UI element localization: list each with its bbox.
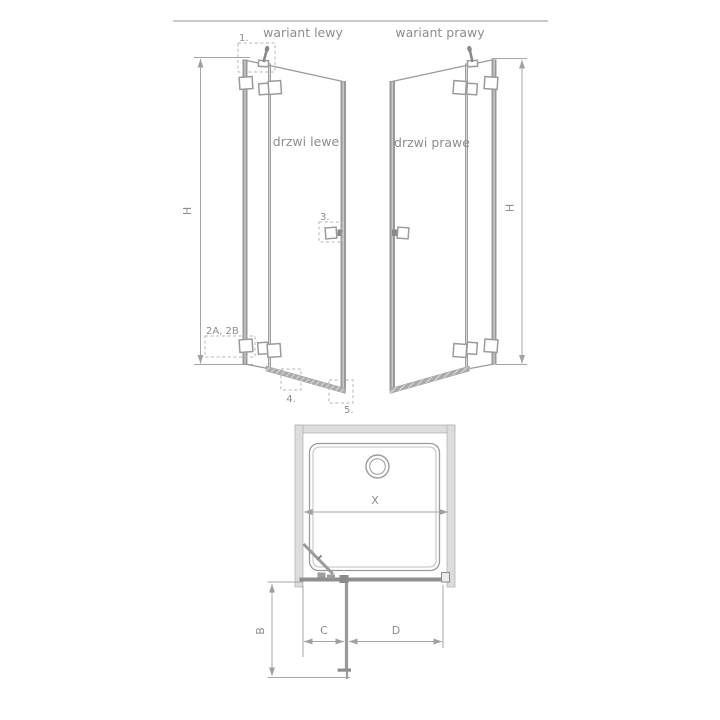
left-variant-title: wariant lewy bbox=[263, 25, 343, 40]
wall-anchor-block bbox=[442, 573, 450, 583]
callout-label-2ab: 2A, 2B bbox=[206, 326, 239, 337]
door-width-dim-label: D bbox=[392, 624, 400, 637]
right-door-text: drzwi prawe bbox=[394, 135, 470, 150]
height-dim-label-right: H bbox=[504, 204, 517, 212]
top-knob bbox=[467, 45, 478, 66]
diagram-page: wariant lewy wariant prawy H bbox=[0, 0, 720, 720]
callout-label-5: 5. bbox=[344, 405, 354, 416]
left-door-elevation: H bbox=[181, 33, 354, 416]
shower-tray bbox=[310, 444, 440, 571]
back-wall bbox=[295, 425, 455, 433]
callout-label-1: 1. bbox=[239, 33, 249, 44]
door-open-90 bbox=[338, 583, 352, 679]
right-wall bbox=[447, 425, 455, 587]
width-dim-label: X bbox=[371, 494, 379, 507]
left-segment-dim-label: C bbox=[320, 624, 328, 637]
right-door-elevation: H bbox=[390, 45, 528, 393]
open-door-handle bbox=[338, 669, 352, 672]
projection-dimension: B bbox=[254, 582, 350, 678]
left-wall bbox=[295, 425, 303, 587]
height-dim-label-left: H bbox=[181, 207, 194, 215]
bottom-edge bbox=[245, 364, 269, 369]
right-variant-title: wariant prawy bbox=[395, 25, 485, 40]
height-dimension-right: H bbox=[492, 59, 527, 365]
front-threshold bbox=[300, 573, 450, 584]
front-dimensions: C D bbox=[303, 585, 443, 657]
top-glass-edge bbox=[392, 60, 494, 82]
bottom-rail-seal bbox=[266, 366, 346, 394]
callout-label-4: 4. bbox=[286, 394, 296, 405]
height-dimension-left: H bbox=[181, 58, 253, 365]
top-hinge-set bbox=[453, 77, 498, 95]
door-handle bbox=[325, 227, 342, 239]
plan-view: X B bbox=[254, 425, 455, 679]
pivot-block bbox=[340, 575, 349, 583]
bottom-edge bbox=[470, 364, 494, 369]
callout-label-3: 3. bbox=[320, 212, 330, 223]
projection-dim-label: B bbox=[254, 627, 267, 635]
bottom-hinge-set bbox=[453, 339, 498, 357]
right-door-frame bbox=[390, 60, 497, 394]
bottom-rail-seal bbox=[390, 366, 470, 394]
technical-diagram: wariant lewy wariant prawy H bbox=[0, 0, 720, 720]
left-door-text: drzwi lewe bbox=[273, 134, 340, 149]
top-knob bbox=[258, 45, 270, 66]
